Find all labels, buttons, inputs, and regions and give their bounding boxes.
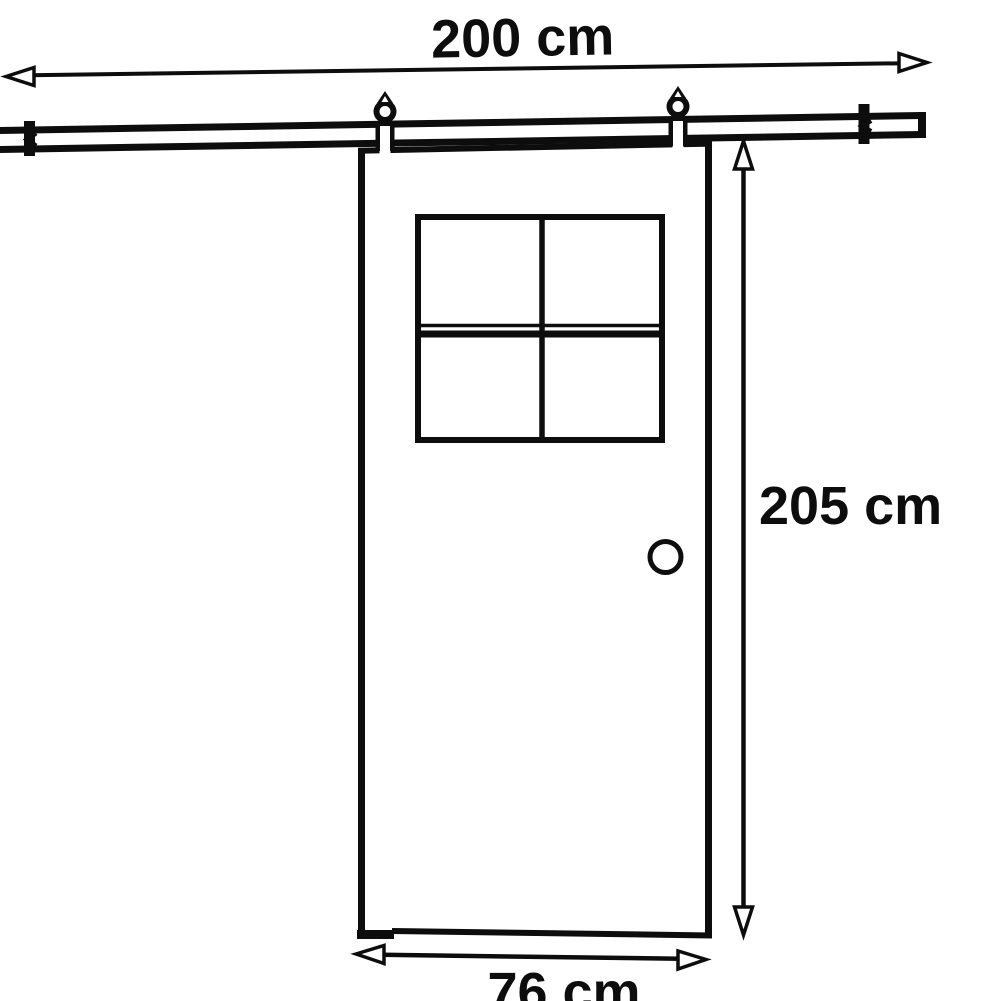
rail-top-line bbox=[0, 116, 922, 131]
door-bottom-edge bbox=[392, 931, 712, 936]
door-handle bbox=[650, 542, 681, 573]
sliding-door-diagram: 200 cm bbox=[0, 0, 1000, 1001]
arrowhead-right-icon bbox=[899, 54, 927, 72]
rail-width-dimension: 200 cm bbox=[6, 6, 927, 85]
door-width-dimension-line bbox=[362, 955, 700, 960]
hanger-stem-side bbox=[390, 124, 395, 151]
door-height-dimension: 205 cm bbox=[735, 141, 943, 935]
hanger-stem-side bbox=[683, 119, 688, 146]
door-width-label: 76 cm bbox=[487, 962, 640, 1001]
window-grid bbox=[416, 217, 664, 440]
diagram-canvas: 200 cm bbox=[0, 0, 1000, 1001]
arrowhead-down-icon bbox=[735, 907, 753, 935]
arrowhead-left-icon bbox=[356, 946, 384, 964]
hanger-stem-side bbox=[376, 124, 381, 151]
hanger-roller-hub bbox=[380, 106, 391, 117]
door-width-dimension: 76 cm bbox=[356, 946, 706, 1001]
rail-width-label: 200 cm bbox=[431, 6, 615, 69]
arrowhead-left-icon bbox=[6, 68, 34, 86]
hanger-stem-slot bbox=[380, 126, 391, 157]
door-panel bbox=[357, 141, 712, 939]
hanger-stem-slot bbox=[673, 121, 684, 152]
arrowhead-right-icon bbox=[678, 951, 706, 969]
door-height-label: 205 cm bbox=[759, 476, 942, 536]
arrowhead-up-icon bbox=[735, 141, 753, 169]
hanger-roller-hub bbox=[673, 101, 684, 112]
hanger-stem-side bbox=[669, 119, 674, 146]
